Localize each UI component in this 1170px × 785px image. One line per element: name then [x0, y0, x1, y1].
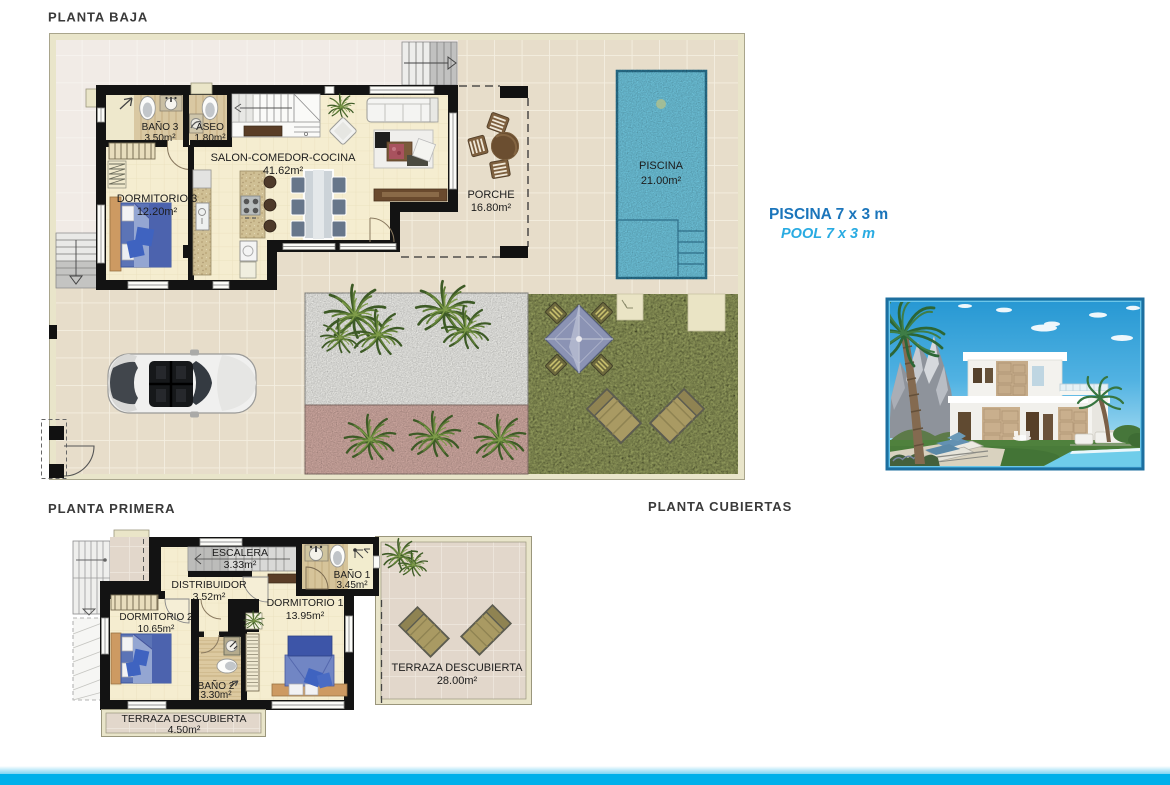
- svg-text:13.95m²: 13.95m²: [286, 610, 325, 622]
- svg-text:10.65m²: 10.65m²: [138, 624, 175, 635]
- svg-text:PLANTA BAJA: PLANTA BAJA: [48, 10, 148, 25]
- svg-text:DORMITORIO 3: DORMITORIO 3: [117, 193, 197, 205]
- svg-text:PORCHE: PORCHE: [467, 189, 514, 201]
- svg-text:3.30m²: 3.30m²: [200, 690, 232, 701]
- svg-text:PISCINA: PISCINA: [639, 160, 684, 172]
- svg-text:TERRAZA DESCUBIERTA: TERRAZA DESCUBIERTA: [391, 662, 523, 674]
- svg-text:3.45m²: 3.45m²: [336, 580, 368, 591]
- svg-text:DISTRIBUIDOR: DISTRIBUIDOR: [171, 579, 247, 591]
- svg-text:DORMITORIO 2: DORMITORIO 2: [119, 612, 193, 623]
- svg-text:16.80m²: 16.80m²: [471, 202, 512, 214]
- svg-text:41.62m²: 41.62m²: [263, 165, 304, 177]
- svg-text:PLANTA CUBIERTAS: PLANTA CUBIERTAS: [648, 499, 792, 514]
- svg-text:POOL 7 x 3 m: POOL 7 x 3 m: [781, 226, 875, 242]
- svg-text:PLANTA PRIMERA: PLANTA PRIMERA: [48, 501, 175, 516]
- svg-text:3.52m²: 3.52m²: [193, 591, 226, 603]
- svg-text:3.33m²: 3.33m²: [224, 559, 257, 571]
- svg-text:PISCINA 7 x 3 m: PISCINA 7 x 3 m: [769, 206, 888, 223]
- svg-text:28.00m²: 28.00m²: [437, 675, 478, 687]
- svg-text:BAÑO 3: BAÑO 3: [142, 120, 179, 133]
- svg-text:ASEO: ASEO: [196, 122, 224, 133]
- svg-text:21.00m²: 21.00m²: [641, 175, 682, 187]
- svg-text:3.50m²: 3.50m²: [144, 133, 176, 144]
- svg-text:DORMITORIO 1: DORMITORIO 1: [267, 597, 344, 609]
- svg-text:1.80m²: 1.80m²: [194, 133, 226, 144]
- svg-text:ESCALERA: ESCALERA: [212, 547, 268, 559]
- svg-text:SALON-COMEDOR-COCINA: SALON-COMEDOR-COCINA: [211, 152, 357, 164]
- svg-text:4.50m²: 4.50m²: [168, 724, 201, 736]
- svg-text:12.20m²: 12.20m²: [137, 206, 178, 218]
